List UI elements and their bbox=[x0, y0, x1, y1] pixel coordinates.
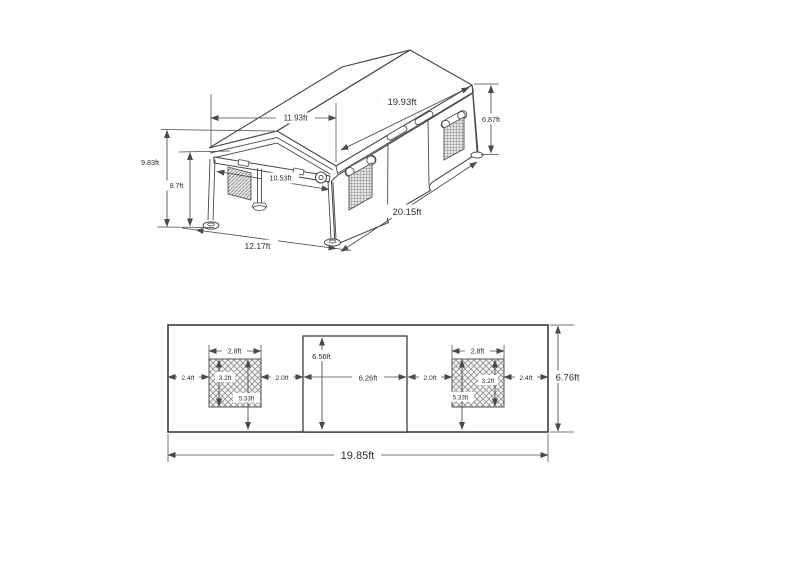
dim-label: 6.87ft bbox=[482, 115, 500, 124]
dim-label: 2.0ft bbox=[423, 375, 436, 382]
front-left-foot-hole bbox=[208, 223, 215, 226]
rear-foot bbox=[471, 152, 483, 158]
dim-label: 6.56ft bbox=[312, 352, 332, 361]
dim-front-ground-width: 12.17ft bbox=[182, 228, 351, 252]
header-fitting bbox=[316, 172, 327, 183]
dim-label: 3.2ft bbox=[482, 378, 495, 385]
dim-label: 5.33ft bbox=[453, 395, 469, 402]
dim-overall-width: 19.85ft bbox=[168, 434, 548, 462]
dim-label: 2.4ft bbox=[519, 375, 532, 382]
technical-drawing-page: 11.93ft 9.83ft 8.7ft 19.93ft 6.87ft bbox=[0, 0, 800, 566]
dim-label: 20.15ft bbox=[392, 207, 421, 218]
elevation-view: 2.8ft 2.8ft 2.4ft 2.0ft 6.26ft 2.0ft bbox=[168, 325, 583, 462]
carport-diagram: 11.93ft 9.83ft 8.7ft 19.93ft 6.87ft bbox=[0, 0, 800, 566]
dim-label: 11.93ft bbox=[284, 114, 309, 123]
front-right-foot-hole bbox=[329, 240, 336, 243]
dim-label: 6.26ft bbox=[359, 374, 379, 383]
dim-label: 2.8ft bbox=[228, 349, 242, 356]
dim-overall-height: 6.76ft bbox=[550, 325, 583, 432]
dim-label: 2.8ft bbox=[471, 349, 485, 356]
dim-label: 5.33ft bbox=[239, 396, 255, 403]
dim-rear-side-height: 6.87ft bbox=[474, 84, 505, 155]
dim-label: 2.4ft bbox=[181, 375, 194, 382]
dim-label: 3.2ft bbox=[219, 375, 232, 382]
dim-label: 9.83ft bbox=[141, 158, 159, 167]
dim-label: 12.17ft bbox=[245, 241, 272, 251]
dim-label: 2.0ft bbox=[275, 375, 288, 382]
dim-label: 6.76ft bbox=[556, 373, 580, 384]
isometric-view: 11.93ft 9.83ft 8.7ft 19.93ft 6.87ft bbox=[141, 50, 505, 252]
front-mesh-panel bbox=[228, 167, 251, 200]
center-pole-foot bbox=[254, 206, 266, 211]
dim-label: 19.93ft bbox=[387, 97, 416, 108]
front-left-leg bbox=[208, 159, 215, 220]
dim-label: 19.85ft bbox=[341, 450, 375, 462]
dim-label: 8.7ft bbox=[170, 183, 184, 190]
dim-label: 10.53ft bbox=[270, 174, 292, 183]
center-pole bbox=[258, 168, 262, 203]
